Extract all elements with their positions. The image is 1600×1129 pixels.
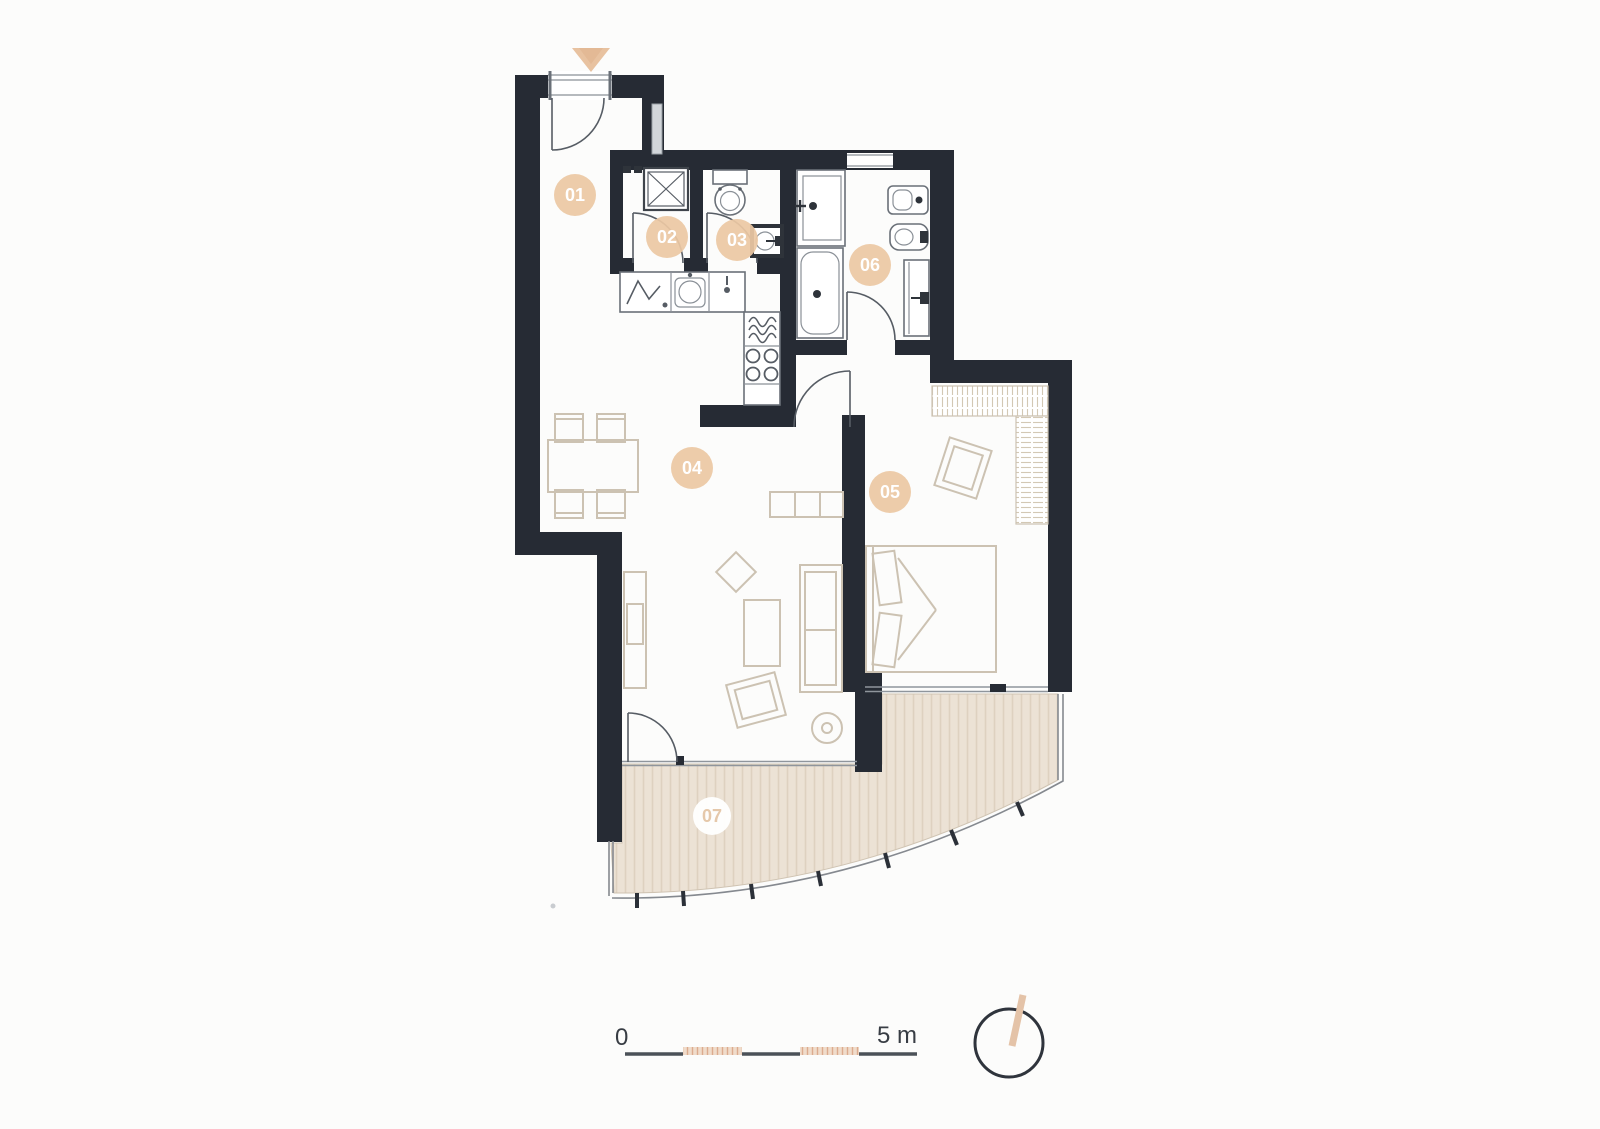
toilet-icon	[713, 170, 747, 215]
room-label-text: 03	[727, 230, 747, 250]
armchair-icon	[726, 672, 786, 727]
room-label-text: 04	[682, 458, 702, 478]
bedroom-terrace-window	[865, 684, 1048, 692]
wall-room03-south	[757, 258, 796, 274]
wall-west-upper	[515, 75, 540, 555]
terrace-floor	[611, 694, 1058, 893]
bedroom	[866, 386, 1048, 672]
wall-bathroom-west	[780, 150, 796, 427]
scale-end-label: 5 m	[877, 1022, 917, 1049]
compass-needle	[1012, 995, 1023, 1046]
wall-west-lower	[597, 532, 622, 842]
bathroom-sink-icon	[795, 170, 845, 246]
dining-table-icon	[548, 414, 638, 518]
room-label-text: 02	[657, 227, 677, 247]
vent-icon	[634, 166, 642, 173]
room-label-05: 05	[869, 471, 911, 513]
sofa-icon	[800, 565, 842, 692]
wall-bathroom-south-left	[796, 340, 847, 355]
room-label-01: 01	[554, 174, 596, 216]
coffee-table-icon	[744, 600, 780, 666]
hall-door-icon	[794, 371, 850, 427]
tv-cabinet-icon	[624, 572, 646, 688]
entry-arrow-icon	[572, 48, 610, 72]
vent-icon	[623, 166, 631, 173]
compass-icon	[975, 995, 1043, 1077]
bathroom-door-icon	[847, 292, 895, 340]
toilet-icon	[888, 186, 928, 214]
room-label-text: 07	[702, 806, 722, 826]
pouf-icon	[716, 552, 756, 592]
bathtub-icon	[797, 248, 843, 338]
terrace-door-icon	[628, 713, 677, 762]
scale-bar-icon: 0 5 m	[615, 1022, 917, 1055]
sideboard-icon	[770, 492, 843, 517]
floor-plan-drawing: 01 02 03 04 05 06 07 0 5 m	[0, 0, 1600, 1129]
floor-lamp-icon	[812, 713, 842, 743]
room-label-02: 02	[646, 216, 688, 258]
room-label-03: 03	[716, 219, 758, 261]
scan-speck	[551, 904, 556, 909]
wall-bedroom-east	[1048, 360, 1072, 692]
wall-block-east	[930, 150, 954, 383]
wall-kitchen-south	[700, 405, 796, 427]
kitchen	[620, 272, 780, 405]
utility-room	[623, 166, 688, 210]
floor-plan-page: 01 02 03 04 05 06 07 0 5 m	[0, 0, 1600, 1129]
bathroom-window	[847, 153, 893, 168]
entry-jamb-detail	[652, 104, 662, 154]
washing-machine-icon	[644, 168, 688, 210]
room-label-04: 04	[671, 447, 713, 489]
window-frame-tick	[990, 684, 1006, 692]
scale-start-label: 0	[615, 1024, 628, 1051]
wall-bedroom-west	[842, 415, 865, 692]
room-label-text: 06	[860, 255, 880, 275]
room-label-06: 06	[849, 244, 891, 286]
double-bed-icon	[866, 546, 996, 672]
room-label-07: 07	[693, 797, 731, 835]
bedroom-chair-icon	[934, 437, 991, 498]
bidet-icon	[890, 224, 928, 250]
room-label-text: 01	[565, 185, 585, 205]
room-label-text: 05	[880, 482, 900, 502]
shower-cabinet-icon	[904, 260, 929, 336]
entry-door-icon	[548, 71, 612, 150]
